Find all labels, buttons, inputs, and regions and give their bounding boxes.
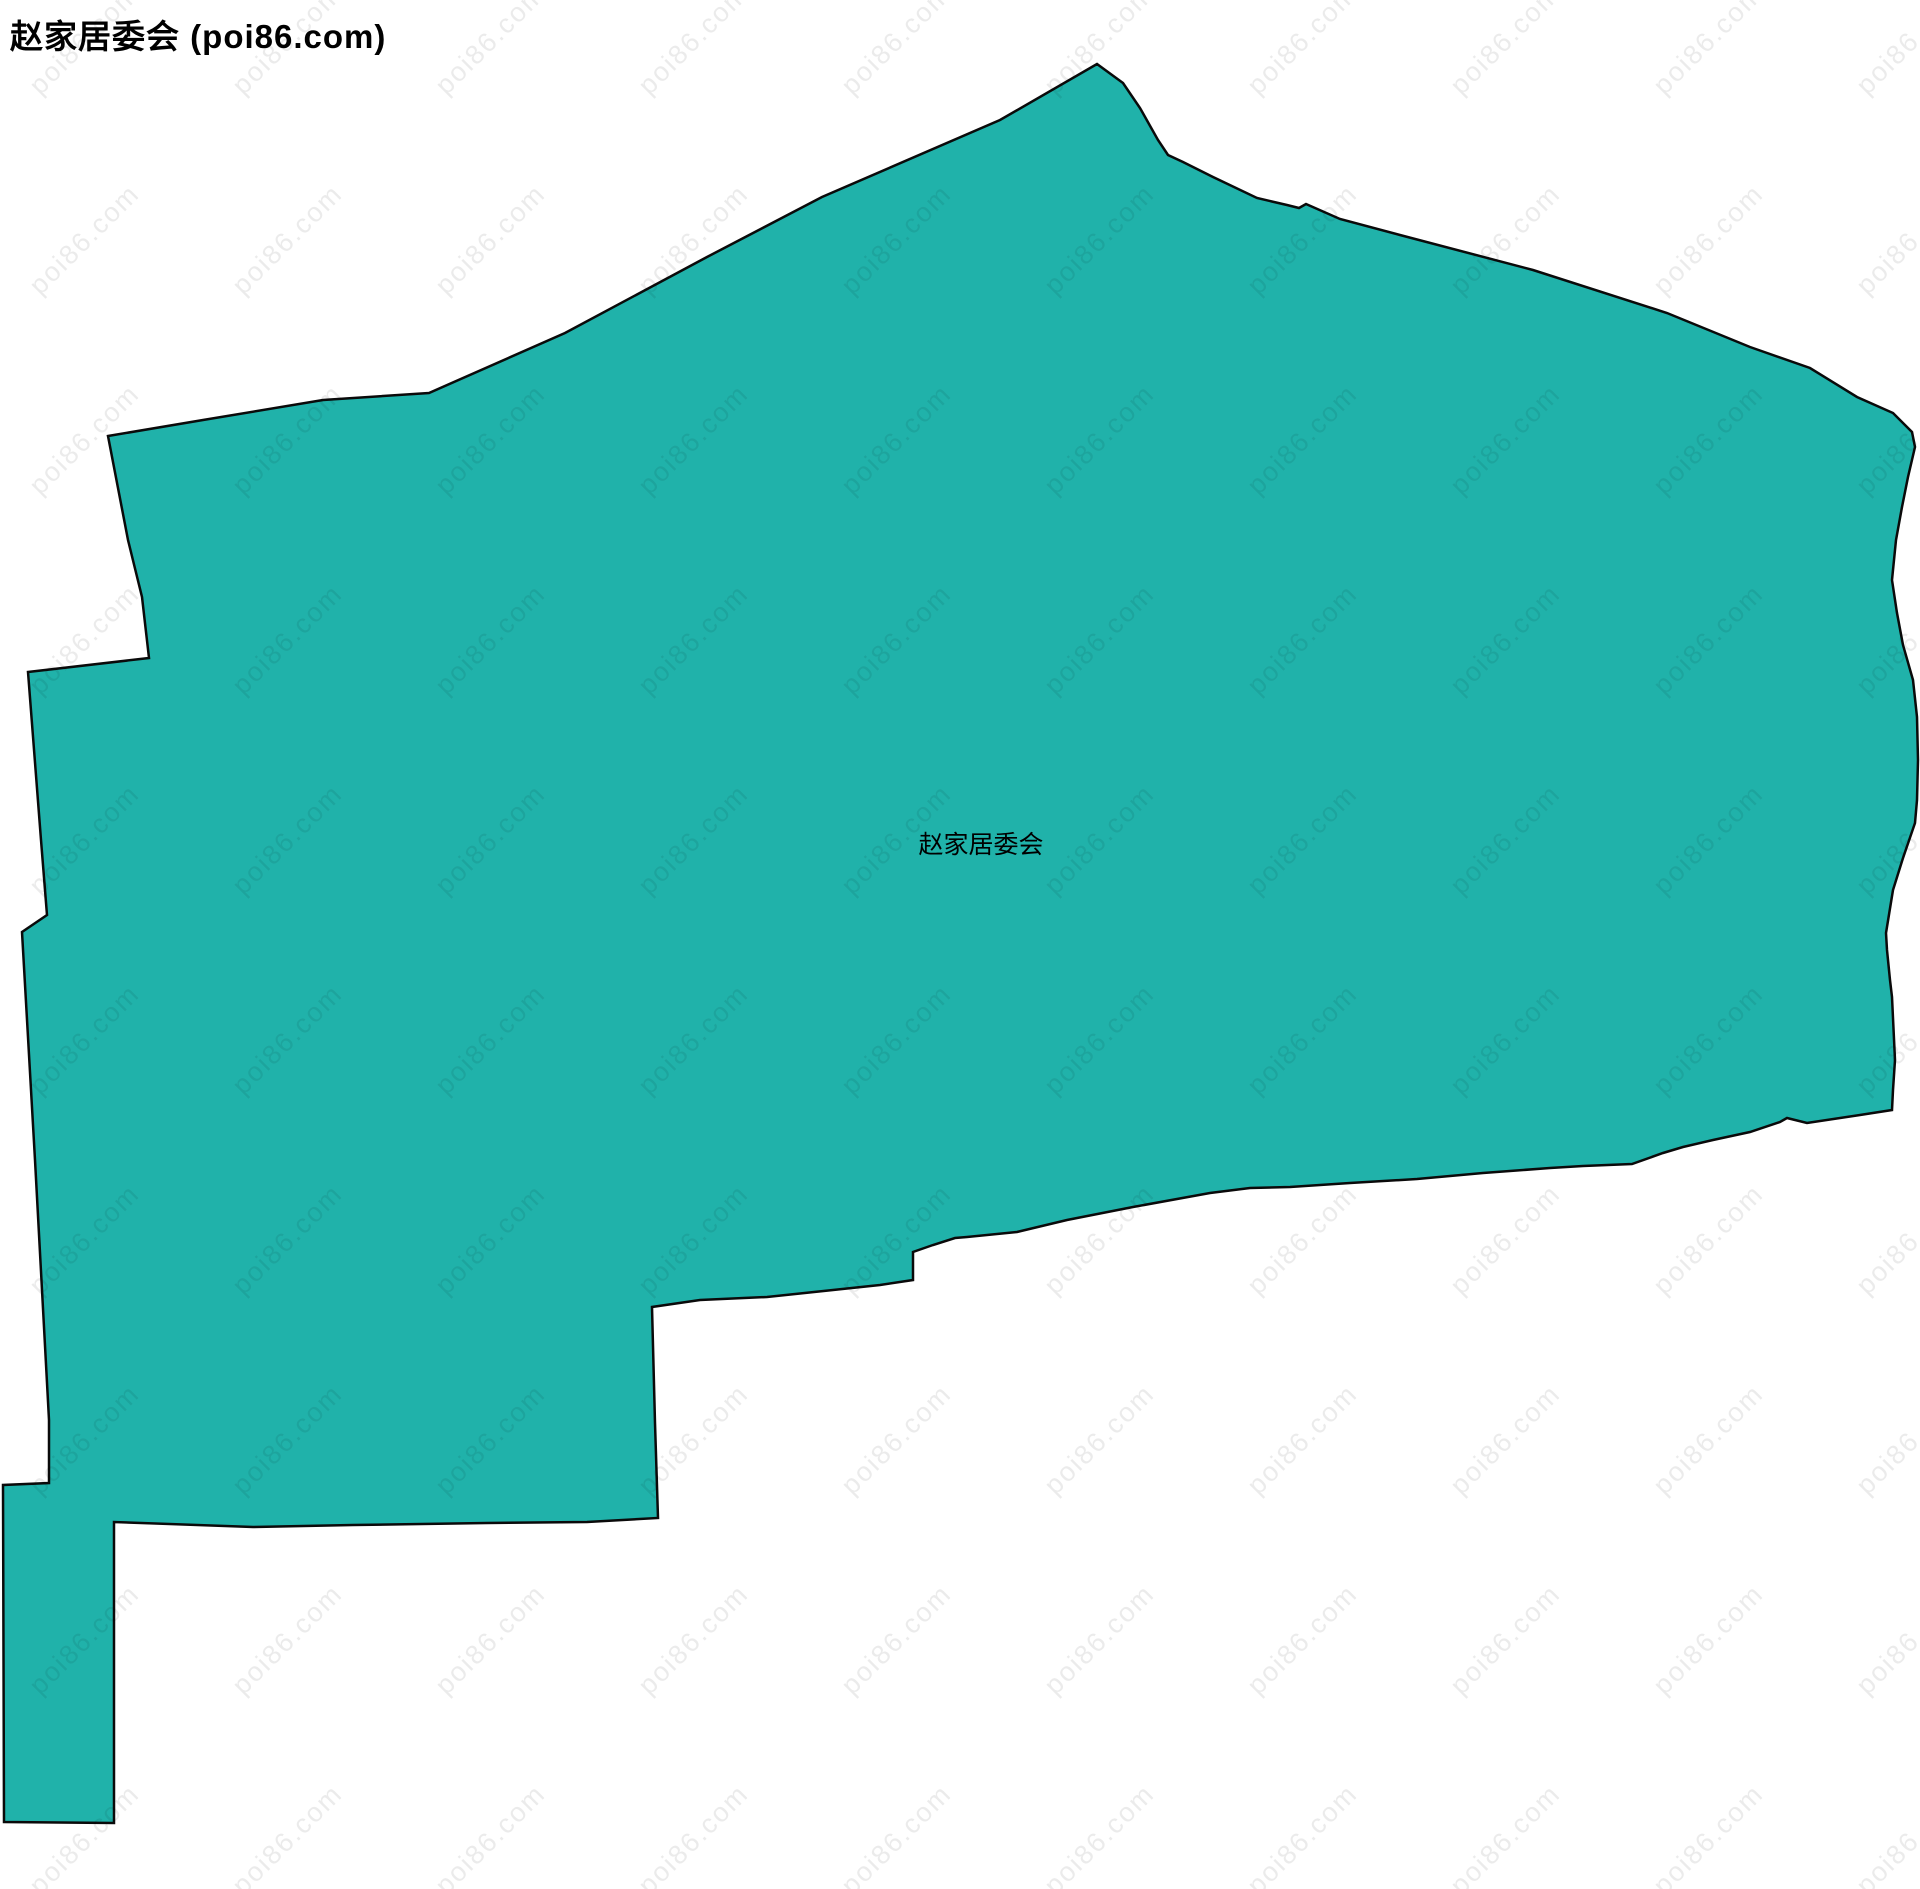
- watermark-overlay: [0, 0, 1920, 1889]
- map-image: poi86.com: [0, 0, 1920, 1889]
- region-label: 赵家居委会: [918, 825, 1043, 861]
- page-title: 赵家居委会 (poi86.com): [10, 10, 386, 58]
- map-canvas: poi86.com 赵家居委会 (poi86.com) 赵家居委会: [0, 0, 1920, 1889]
